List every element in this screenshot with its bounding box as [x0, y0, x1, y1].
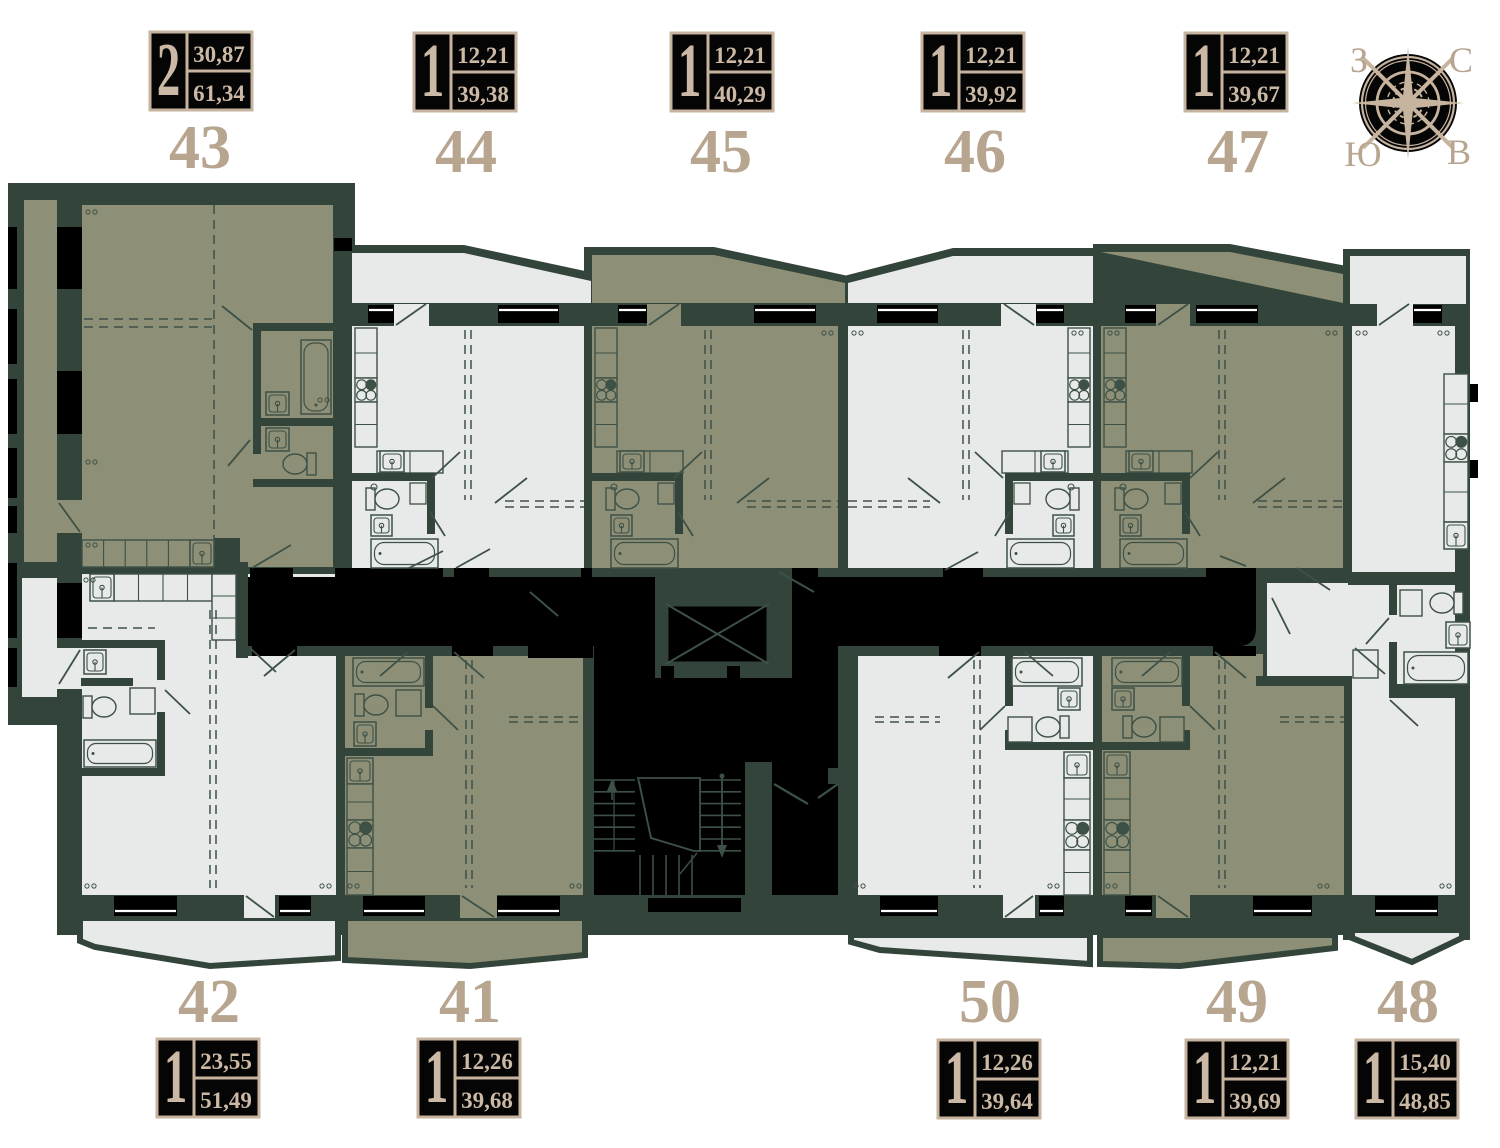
svg-text:45: 45 — [690, 118, 752, 186]
svg-text:39,92: 39,92 — [965, 82, 1017, 107]
svg-text:42: 42 — [178, 968, 240, 1036]
svg-text:1: 1 — [929, 29, 953, 113]
svg-text:46: 46 — [944, 118, 1006, 186]
svg-text:30,87: 30,87 — [193, 42, 245, 67]
svg-text:1: 1 — [1363, 1036, 1387, 1120]
svg-text:1: 1 — [425, 1035, 449, 1119]
svg-text:1: 1 — [164, 1035, 188, 1119]
svg-text:З: З — [1350, 40, 1368, 80]
svg-text:Ю: Ю — [1344, 134, 1381, 174]
svg-text:47: 47 — [1207, 118, 1269, 186]
svg-text:15,40: 15,40 — [1399, 1050, 1451, 1075]
svg-text:12,26: 12,26 — [981, 1050, 1033, 1075]
svg-text:39,64: 39,64 — [981, 1089, 1033, 1114]
svg-text:1: 1 — [1192, 29, 1216, 113]
svg-text:61,34: 61,34 — [193, 81, 245, 106]
svg-text:В: В — [1447, 132, 1471, 172]
svg-text:51,49: 51,49 — [200, 1088, 252, 1113]
svg-text:С: С — [1449, 40, 1473, 80]
svg-text:12,21: 12,21 — [965, 43, 1017, 68]
svg-text:39,69: 39,69 — [1229, 1089, 1281, 1114]
svg-text:48,85: 48,85 — [1399, 1089, 1451, 1114]
svg-text:39,38: 39,38 — [457, 82, 509, 107]
svg-text:41: 41 — [439, 968, 501, 1036]
svg-text:12,21: 12,21 — [457, 43, 509, 68]
svg-text:1: 1 — [678, 29, 702, 113]
svg-text:48: 48 — [1377, 968, 1439, 1036]
svg-text:12,21: 12,21 — [1228, 43, 1280, 68]
svg-text:12,21: 12,21 — [1229, 1050, 1281, 1075]
svg-text:44: 44 — [435, 118, 497, 186]
svg-text:40,29: 40,29 — [714, 82, 766, 107]
svg-text:49: 49 — [1206, 968, 1268, 1036]
svg-text:1: 1 — [945, 1036, 969, 1120]
svg-text:43: 43 — [169, 114, 231, 182]
svg-text:12,21: 12,21 — [714, 43, 766, 68]
svg-text:50: 50 — [959, 968, 1021, 1036]
svg-text:1: 1 — [421, 29, 445, 113]
svg-text:23,55: 23,55 — [200, 1049, 252, 1074]
svg-text:1: 1 — [1193, 1036, 1217, 1120]
svg-text:39,67: 39,67 — [1228, 82, 1280, 107]
svg-text:12,26: 12,26 — [461, 1049, 513, 1074]
svg-text:39,68: 39,68 — [461, 1088, 513, 1113]
svg-text:2: 2 — [157, 28, 181, 112]
